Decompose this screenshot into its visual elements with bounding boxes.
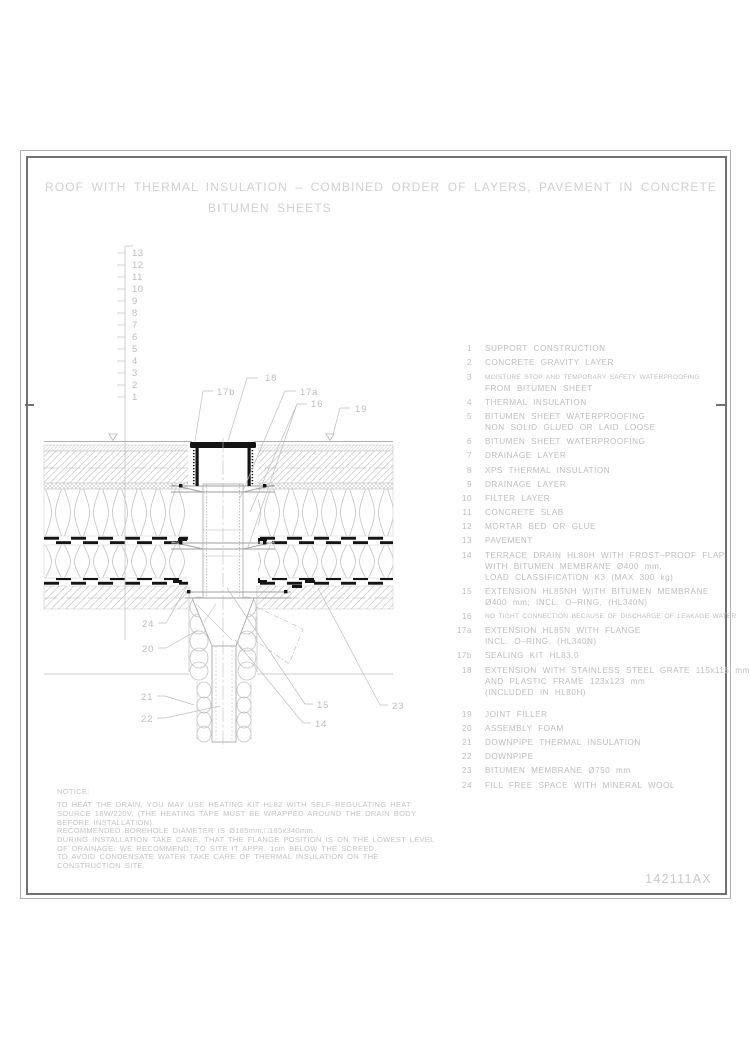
callout-17b: 17b <box>217 387 235 398</box>
callout-22: 22 <box>141 714 153 725</box>
scale-label-4: 4 <box>132 356 138 367</box>
legend-row: 7DRAINAGE LAYER <box>452 450 724 461</box>
scale-label-2: 2 <box>132 380 138 391</box>
legend-row: 14TERRACE DRAIN HL80H WITH FROST–PROOF F… <box>452 550 724 561</box>
legend-row-cont: (INCLUDED IN HL80H) <box>452 687 724 698</box>
drawing-number: 142111AX <box>590 872 712 886</box>
scale-label-9: 9 <box>132 296 138 307</box>
callout-17a: 17a <box>300 387 318 398</box>
scale-label-11: 11 <box>132 272 143 283</box>
scale-label-7: 7 <box>132 320 138 331</box>
legend-row: 17aEXTENSION HL85N WITH FLANGE <box>452 625 724 636</box>
legend-row-cont: FROM BITUMEN SHEET <box>452 383 724 394</box>
legend-row: 21DOWNPIPE THERMAL INSULATION <box>452 737 724 748</box>
scale-label-12: 12 <box>132 260 144 271</box>
scale-label-5: 5 <box>132 344 138 355</box>
legend-row-cont: AND PLASTIC FRAME 123x123 mm <box>452 676 724 687</box>
callout-18: 18 <box>265 373 277 384</box>
callout-24: 24 <box>142 619 154 630</box>
layer-numbers: 13 12 11 10 9 8 7 6 5 4 3 2 1 <box>132 248 144 403</box>
downpipe <box>212 646 236 742</box>
notice-line: CONSTRUCTION SITE. <box>57 862 417 871</box>
legend-row: 20ASSEMBLY FOAM <box>452 723 724 734</box>
legend-row: 11CONCRETE SLAB <box>452 507 724 518</box>
legend-row-cont: NON SOLID GLUED OR LAID LOOSE <box>452 422 724 433</box>
scale-label-8: 8 <box>132 308 138 319</box>
legend-row: 16NO TIGHT CONNECTION BECAUSE OF DISCHAR… <box>452 611 724 622</box>
scale-label-13: 13 <box>132 248 144 259</box>
scale-label-6: 6 <box>132 332 138 343</box>
callout-14: 14 <box>315 719 327 730</box>
callout-16: 16 <box>311 399 323 410</box>
legend-row: 15EXTENSION HL85NH WITH BITUMEN MEMBRANE <box>452 586 724 597</box>
legend: 1SUPPORT CONSTRUCTION 2CONCRETE GRAVITY … <box>452 340 724 791</box>
legend-row-cont: INCL. O–RING, (HL340N) <box>452 636 724 647</box>
notice-block: NOTICE: TO HEAT THE DRAIN, YOU MAY USE H… <box>57 788 417 871</box>
legend-row: 22DOWNPIPE <box>452 751 724 762</box>
notice-heading: NOTICE: <box>57 788 417 797</box>
legend-row: 3MOISTURE STOP AND TEMPORARY SAFETY WATE… <box>452 372 724 383</box>
legend-row: 24FILL FREE SPACE WITH MINERAL WOOL <box>452 780 724 791</box>
legend-row: 2CONCRETE GRAVITY LAYER <box>452 357 724 368</box>
legend-row: 1SUPPORT CONSTRUCTION <box>452 343 724 354</box>
callout-19: 19 <box>355 404 367 415</box>
legend-row: 4THERMAL INSULATION <box>452 397 724 408</box>
legend-row: 13PAVEMENT <box>452 535 724 546</box>
callout-21: 21 <box>141 692 153 703</box>
callout-15: 15 <box>317 700 329 711</box>
legend-row: 23BITUMEN MEMBRANE Ø750 mm <box>452 765 724 776</box>
legend-row: 8XPS THERMAL INSULATION <box>452 465 724 476</box>
legend-row-cont: WITH BITUMEN MEMBRANE Ø400 mm, <box>452 561 724 572</box>
legend-row-cont: Ø400 mm; INCL. O–RING, (HL340N) <box>452 597 724 608</box>
scale-label-1: 1 <box>132 392 138 403</box>
legend-row: 19JOINT FILLER <box>452 709 724 720</box>
scale-label-10: 10 <box>132 284 144 295</box>
frost-flap-outline <box>256 607 303 664</box>
level-marks <box>109 434 334 441</box>
legend-row: 5BITUMEN SHEET WATERPROOFING <box>452 411 724 422</box>
legend-row: 10FILTER LAYER <box>452 493 724 504</box>
legend-row: 17bSEALING KIT HL83.0 <box>452 650 724 661</box>
legend-row: 18EXTENSION WITH STAINLESS STEEL GRATE 1… <box>452 665 724 676</box>
legend-row: 9DRAINAGE LAYER <box>452 479 724 490</box>
legend-row: 6BITUMEN SHEET WATERPROOFING <box>452 436 724 447</box>
callout-20: 20 <box>142 644 154 655</box>
scale-label-3: 3 <box>132 368 138 379</box>
cad-sheet: { "title": { "line1": "ROOF WITH THERMAL… <box>0 0 750 1062</box>
legend-row: 12MORTAR BED OR GLUE <box>452 521 724 532</box>
callout-23: 23 <box>392 701 404 712</box>
legend-row-cont: LOAD CLASSIFICATION K3 (MAX 300 kg) <box>452 572 724 583</box>
